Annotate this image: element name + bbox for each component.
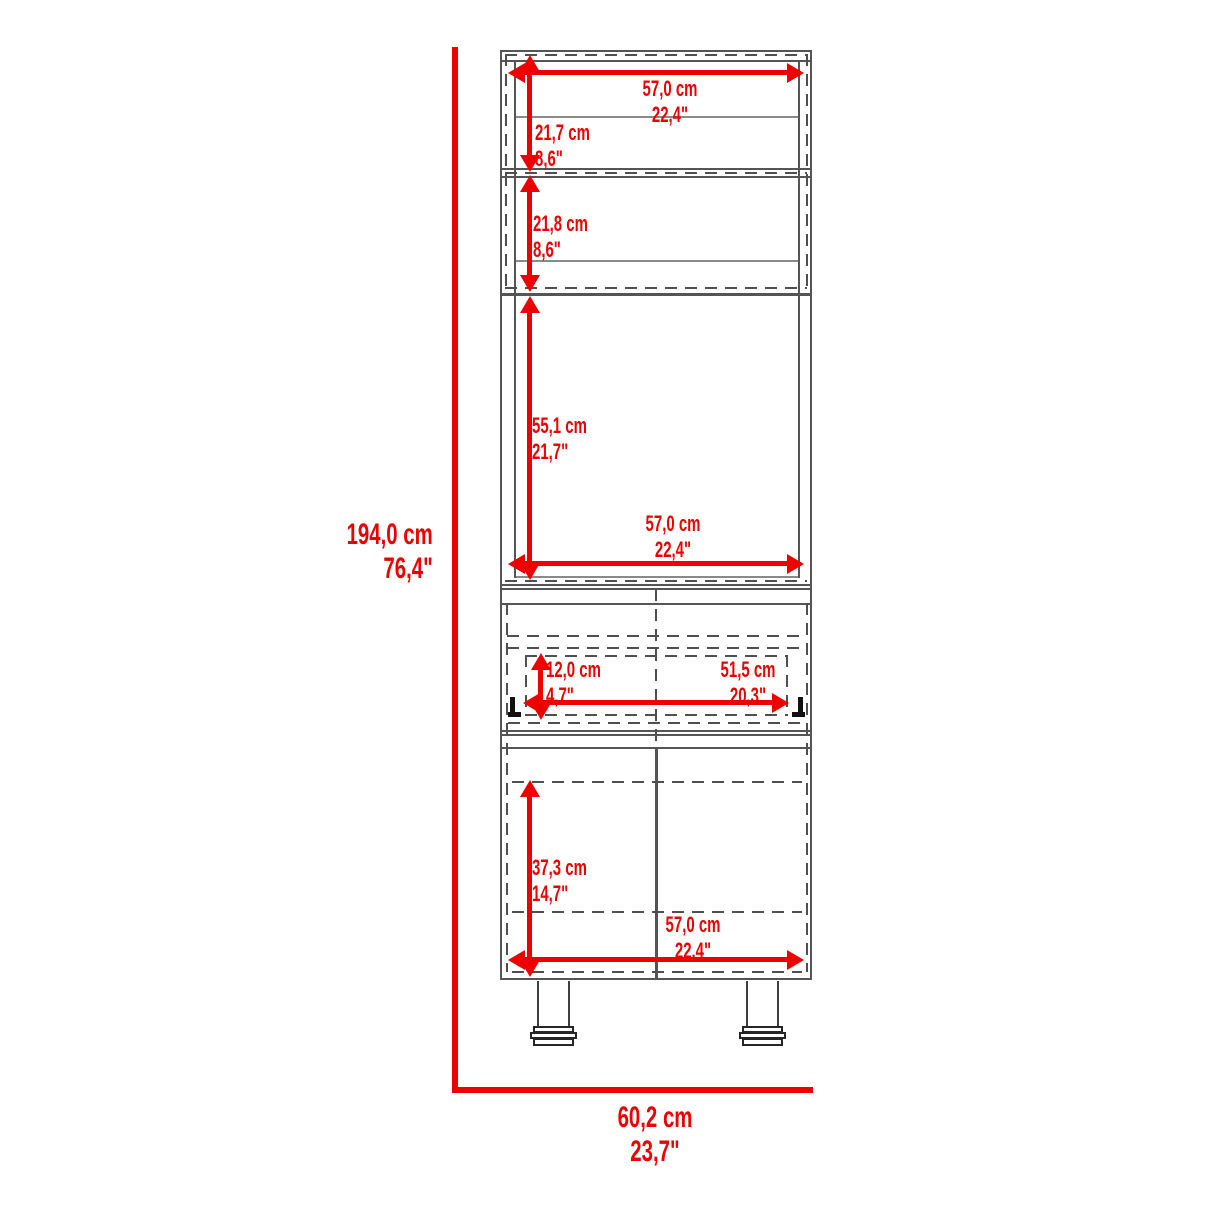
- dim-value-in: 8,6": [535, 146, 590, 172]
- dim-label-base-width: 57,0 cm 22,4": [666, 912, 721, 964]
- drawer-slide-right: [792, 712, 805, 717]
- dim-value-in: 8,6": [533, 237, 588, 263]
- dim-arrow-shelf1-height: [527, 71, 532, 156]
- dim-value-cm: 57,0 cm: [646, 511, 701, 537]
- dim-arrow-base-width: [524, 957, 788, 962]
- leg-left: [537, 981, 570, 1028]
- dim-value-cm: 57,0 cm: [643, 76, 698, 102]
- overall-height-line: [452, 47, 458, 1093]
- dim-label-shelf2-height: 21,8 cm 8,6": [533, 211, 588, 263]
- dim-value-in: 22,4": [646, 537, 701, 563]
- top-panel-line: [502, 60, 810, 62]
- dim-label-overall-width: 60,2 cm 23,7": [618, 1101, 693, 1169]
- right-hidden-edge: [806, 54, 808, 296]
- drawer-slide-left: [508, 712, 521, 717]
- right-hidden-edge: [806, 603, 808, 972]
- dim-arrow-shelf2-height: [527, 191, 532, 276]
- dim-value-in: 21,7": [532, 439, 587, 465]
- dim-label-drawer-height: 12,0 cm 4,7": [546, 657, 601, 709]
- door-top-hidden-edge: [512, 781, 802, 783]
- dim-value-in: 20,3": [721, 683, 776, 709]
- dim-value-cm: 194,0 cm: [347, 518, 433, 552]
- drawer-bottom-hidden-edge: [508, 722, 804, 724]
- dim-label-top-width: 57,0 cm 22,4": [643, 76, 698, 128]
- dim-value-cm: 37,3 cm: [532, 855, 587, 881]
- dim-label-shelf1-height: 21,7 cm 8,6": [535, 120, 590, 172]
- drawer-section-bottom-line: [502, 730, 810, 732]
- dim-value-cm: 12,0 cm: [546, 657, 601, 683]
- dim-label-cavity-width: 57,0 cm 22,4": [646, 511, 701, 563]
- right-inner-wall: [798, 60, 800, 578]
- drawer-box-outline: [525, 714, 788, 716]
- overall-width-line: [452, 1087, 813, 1093]
- hutch-bottom-line: [516, 576, 798, 578]
- dim-value-in: 4,7": [546, 683, 601, 709]
- interior-shelf-hidden-edge: [512, 911, 802, 913]
- hutch-bottom-hidden-edge: [505, 580, 807, 582]
- dim-value-cm: 55,1 cm: [532, 413, 587, 439]
- leg-left-foot: [533, 1038, 574, 1046]
- shelf-hidden-edge: [505, 172, 807, 174]
- shelf-board: [502, 293, 810, 296]
- dim-label-overall-height: 194,0 cm 76,4": [347, 518, 433, 586]
- hutch-bottom-panel: [502, 584, 810, 586]
- dim-value-in: 22,4": [643, 102, 698, 128]
- drawer-front-hidden-edge: [507, 647, 805, 649]
- drawer-front-hidden-edge: [507, 635, 805, 637]
- drawer-section-bottom-line: [502, 734, 810, 736]
- left-hidden-edge: [505, 54, 507, 296]
- shelf-board-bottom: [502, 176, 810, 178]
- dim-value-in: 22,4": [666, 938, 721, 964]
- dim-value-cm: 60,2 cm: [618, 1101, 693, 1135]
- dim-value-in: 76,4": [347, 552, 433, 586]
- dim-label-drawer-width: 51,5 cm 20,3": [721, 657, 776, 709]
- door-bottom-hidden-edge: [512, 971, 802, 973]
- dim-value-in: 14,7": [532, 881, 587, 907]
- shelf-hidden-edge: [505, 287, 807, 289]
- left-hidden-edge: [506, 603, 508, 972]
- dimension-diagram: 57,0 cm 22,4" 21,7 cm 8,6" 21,8 cm 8,6" …: [0, 0, 1214, 1214]
- dim-label-cavity-height: 55,1 cm 21,7": [532, 413, 587, 465]
- dim-value-cm: 57,0 cm: [666, 912, 721, 938]
- left-inner-wall: [514, 60, 516, 578]
- dim-value-cm: 21,8 cm: [533, 211, 588, 237]
- dim-value-cm: 51,5 cm: [721, 657, 776, 683]
- dim-value-in: 23,7": [618, 1135, 693, 1169]
- dim-value-cm: 21,7 cm: [535, 120, 590, 146]
- dim-arrow-top-width: [524, 70, 788, 75]
- leg-right-foot: [742, 1038, 783, 1046]
- top-panel-hidden-edge: [505, 54, 807, 56]
- leg-right: [746, 981, 779, 1028]
- dim-label-door-height: 37,3 cm 14,7": [532, 855, 587, 907]
